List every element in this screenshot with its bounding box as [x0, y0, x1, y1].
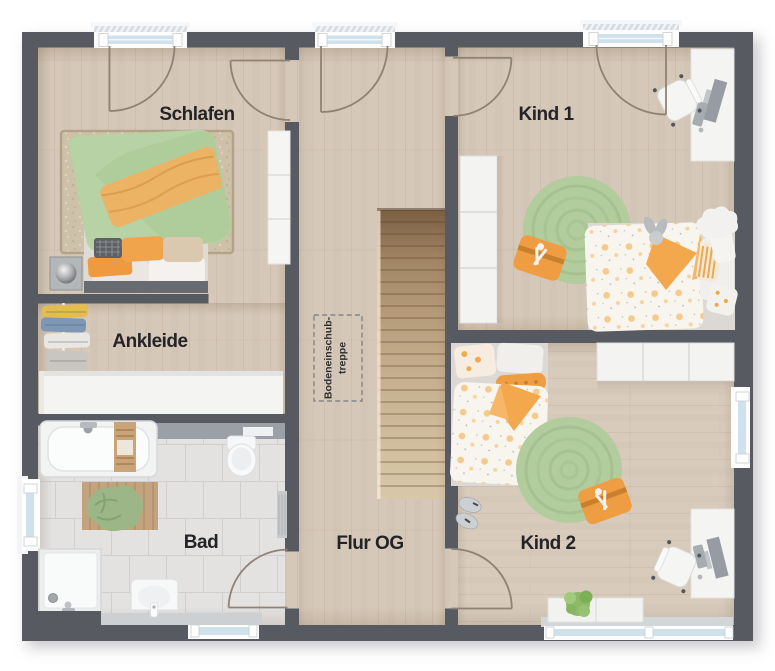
svg-text:Ankleide: Ankleide	[112, 331, 187, 352]
svg-text:treppe: treppe	[337, 342, 349, 374]
svg-text:Bad: Bad	[184, 532, 218, 553]
svg-text:Kind 2: Kind 2	[520, 533, 575, 554]
svg-text:Schlafen: Schlafen	[159, 104, 234, 125]
svg-text:Flur OG: Flur OG	[336, 533, 403, 554]
svg-text:Bodeneinschub-: Bodeneinschub-	[323, 316, 335, 399]
svg-text:Kind 1: Kind 1	[518, 104, 574, 125]
